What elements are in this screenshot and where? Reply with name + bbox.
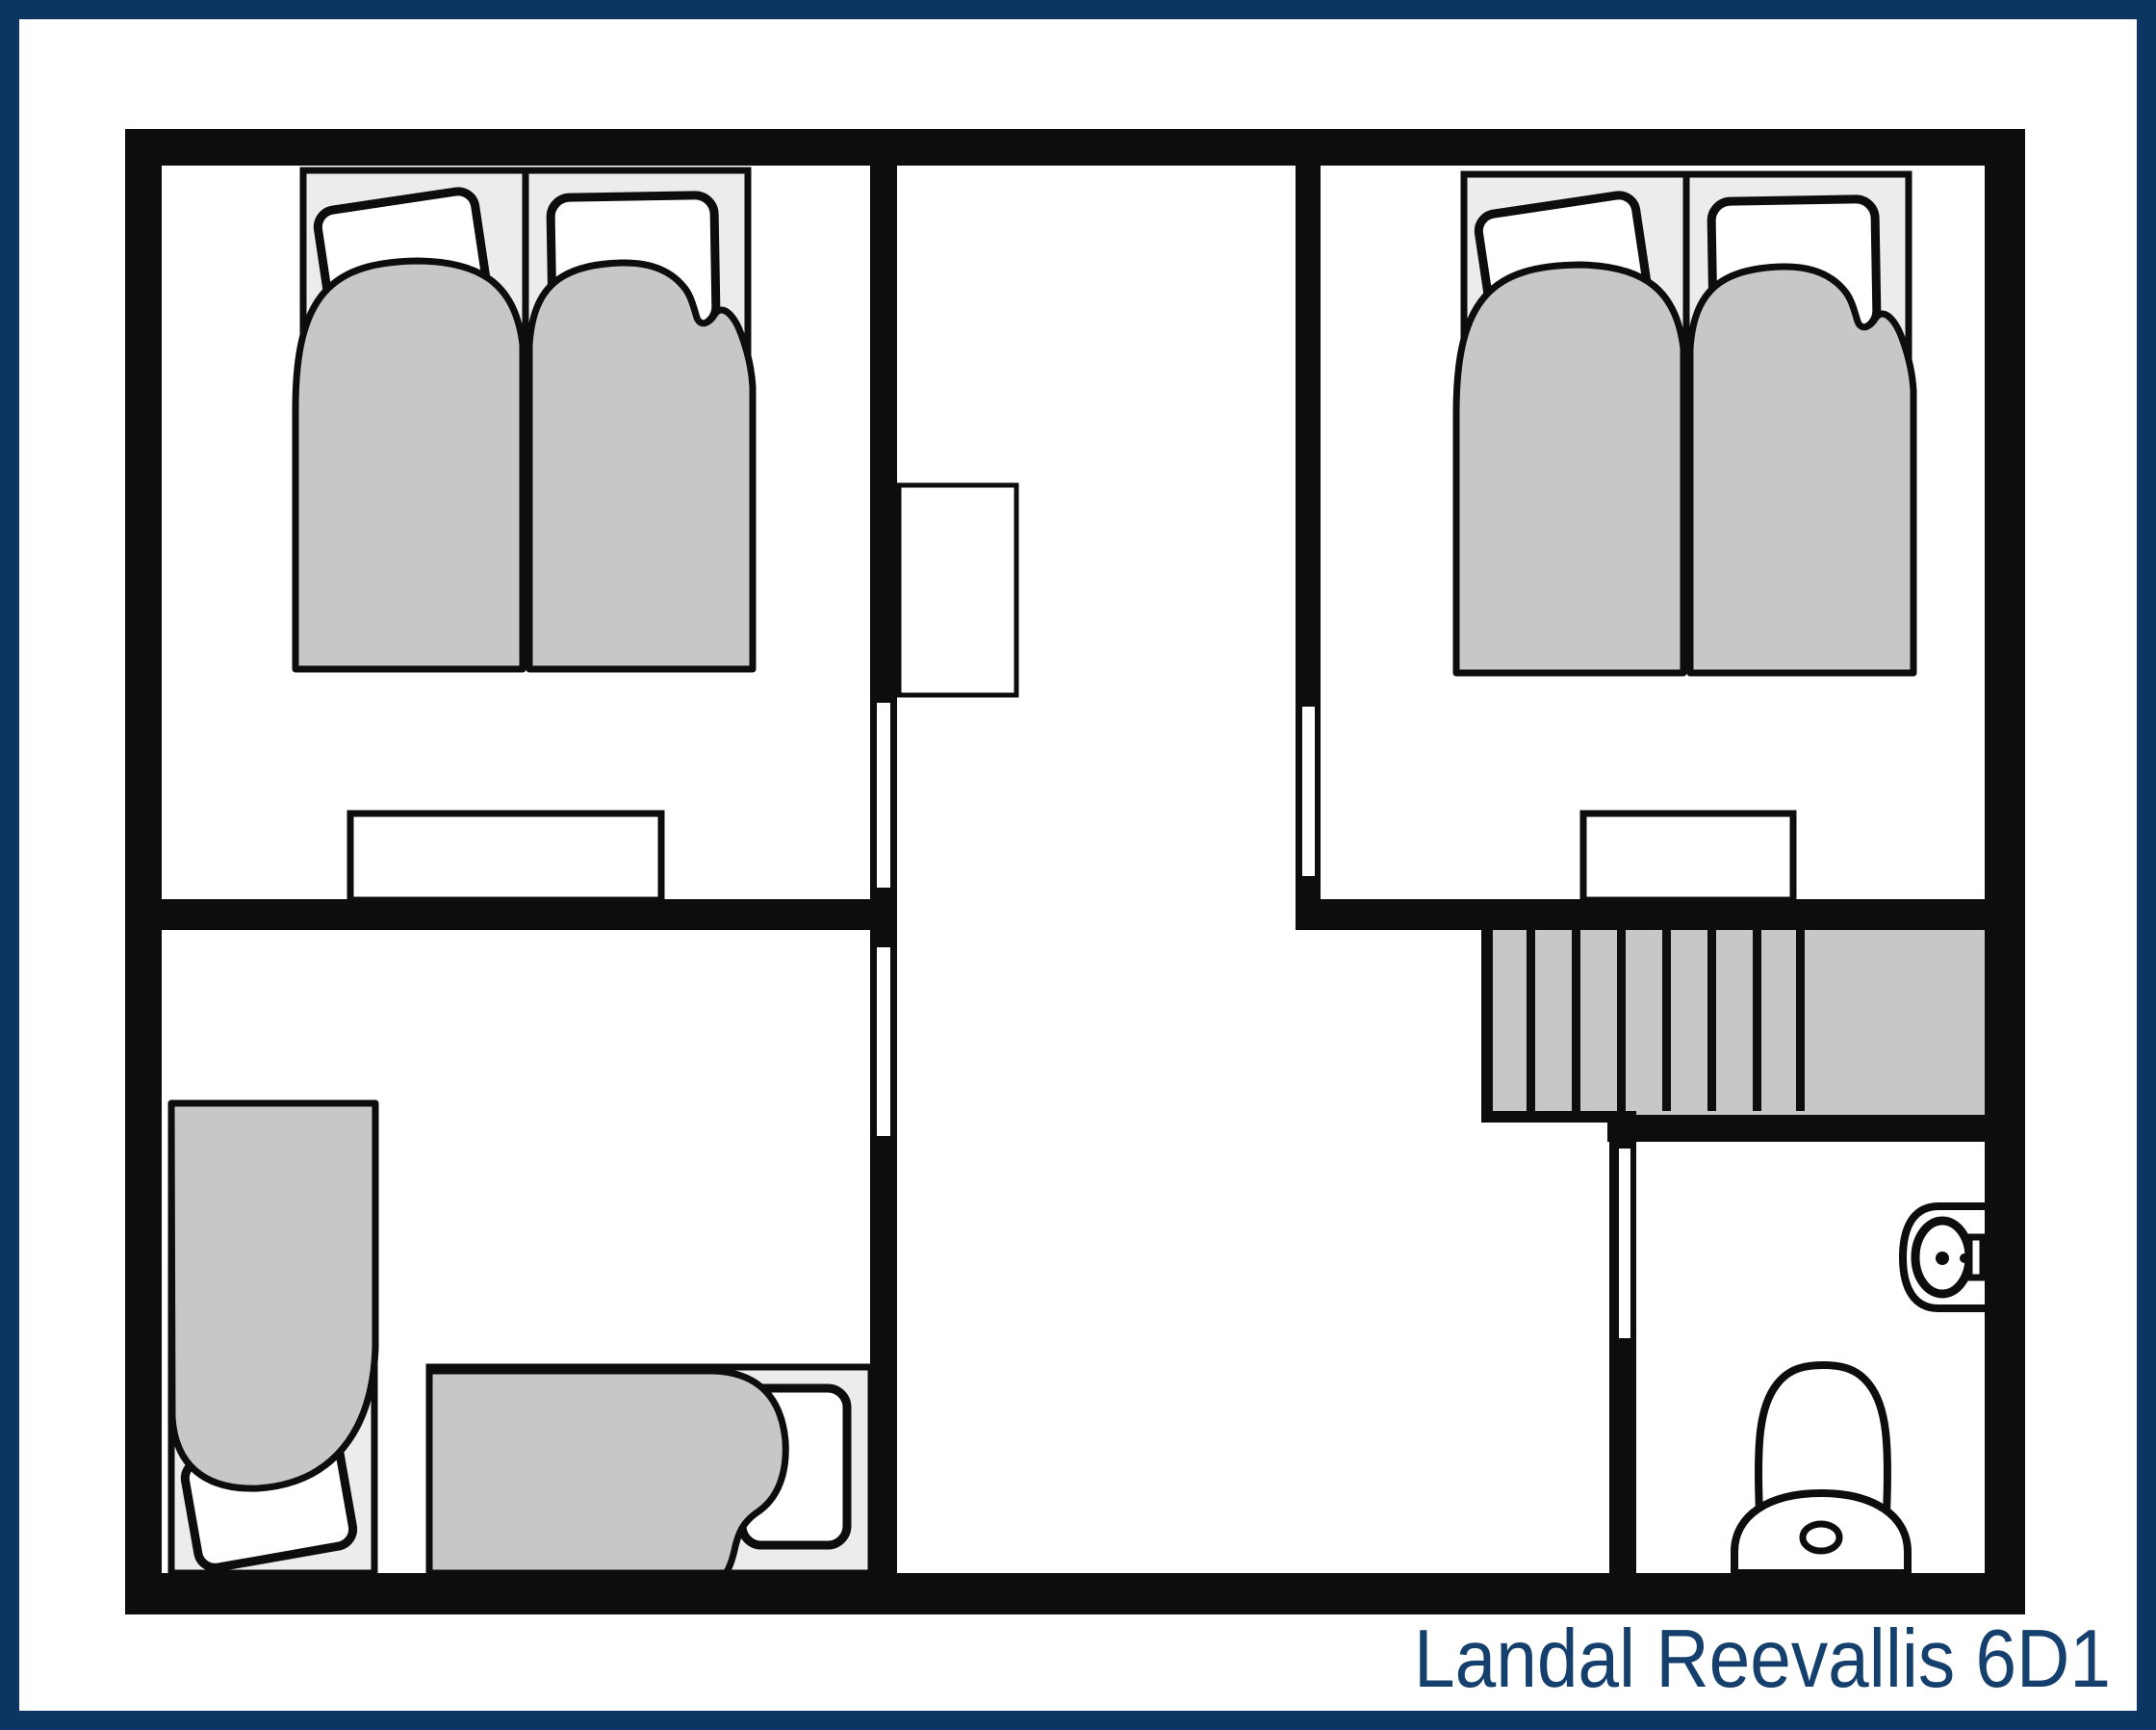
svg-text:Landal Reevallis 6D1: Landal Reevallis 6D1 — [1414, 1614, 2111, 1705]
